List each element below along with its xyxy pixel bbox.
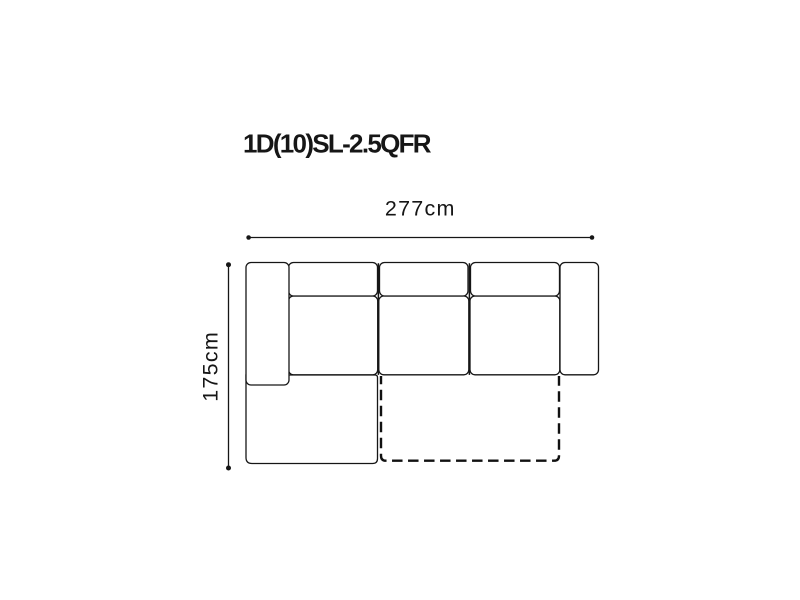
svg-text:1D(10)SL-2.5QFR: 1D(10)SL-2.5QFR [243, 129, 432, 159]
svg-text:175cm: 175cm [199, 331, 223, 402]
svg-text:277cm: 277cm [385, 196, 456, 220]
